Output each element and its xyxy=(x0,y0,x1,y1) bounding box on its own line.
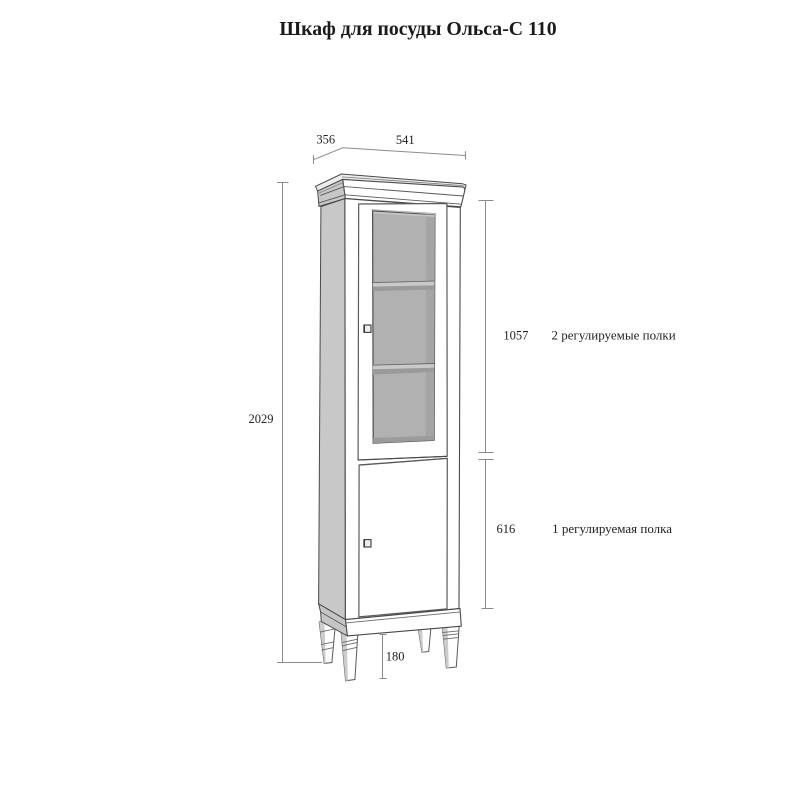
svg-text:1057: 1057 xyxy=(503,328,528,342)
svg-text:1 регулируемая полка: 1 регулируемая полка xyxy=(552,521,672,536)
svg-text:2029: 2029 xyxy=(249,412,274,426)
svg-text:541: 541 xyxy=(396,133,415,147)
svg-text:356: 356 xyxy=(316,132,335,146)
svg-text:180: 180 xyxy=(386,650,405,664)
svg-text:616: 616 xyxy=(497,522,516,536)
svg-text:2 регулируемые полки: 2 регулируемые полки xyxy=(552,327,676,342)
svg-text:Шкаф для посуды Ольса-С 110: Шкаф для посуды Ольса-С 110 xyxy=(279,18,556,40)
